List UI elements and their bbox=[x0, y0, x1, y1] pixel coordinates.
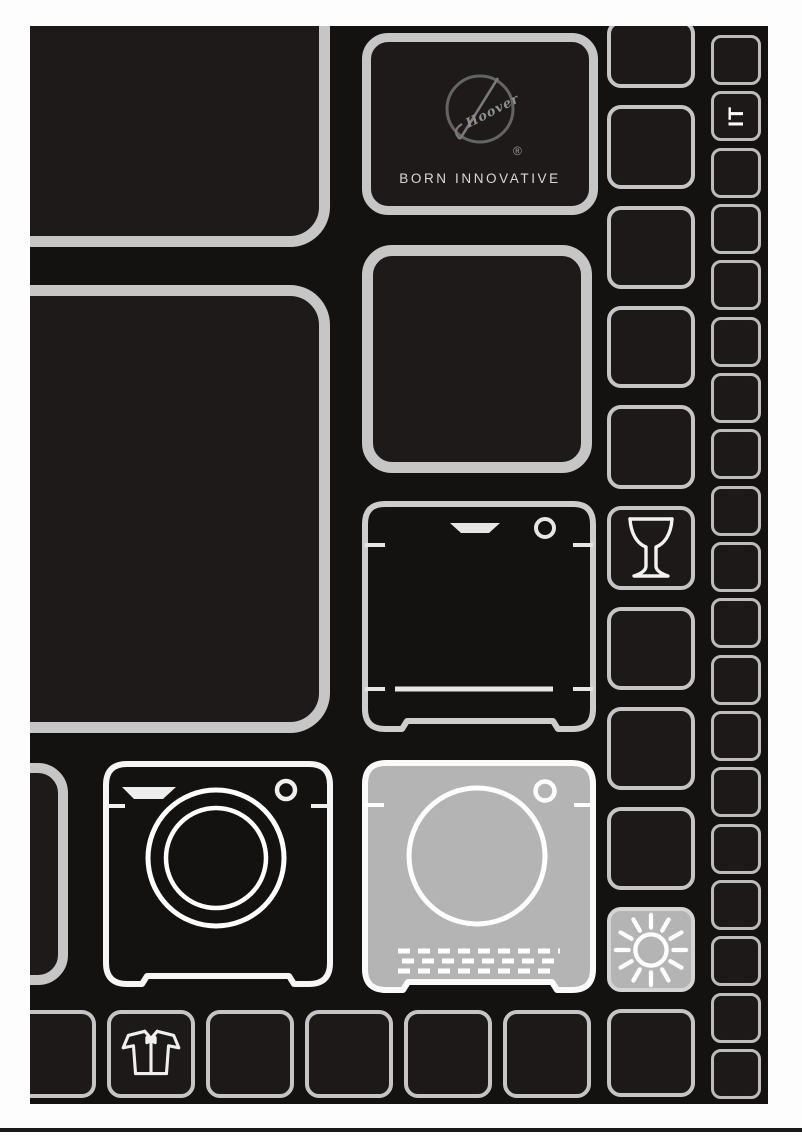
program-cell-empty bbox=[607, 105, 695, 189]
hoover-logo: Hoover ® bbox=[405, 63, 555, 165]
index-cell-empty bbox=[711, 993, 761, 1043]
program-cell-wine-glass bbox=[607, 506, 695, 590]
index-cell-empty bbox=[711, 936, 761, 986]
bottom-cell-empty bbox=[503, 1010, 591, 1098]
program-cell-empty bbox=[607, 306, 695, 388]
index-cell-empty bbox=[711, 655, 761, 705]
bottom-cell-empty bbox=[305, 1010, 393, 1098]
index-cell-empty bbox=[711, 542, 761, 592]
manual-cover-page: Hoover ® BORN INNOVATIVE bbox=[30, 26, 768, 1104]
language-badge: IT bbox=[725, 106, 746, 127]
program-cell-empty bbox=[607, 206, 695, 289]
index-cell-empty bbox=[711, 1049, 761, 1099]
sun-icon bbox=[612, 911, 690, 989]
bottom-row bbox=[30, 1010, 591, 1098]
program-cell-empty bbox=[607, 607, 695, 690]
index-cell-empty bbox=[711, 373, 761, 423]
index-cell-empty bbox=[711, 767, 761, 817]
index-cell-empty bbox=[711, 204, 761, 254]
index-cell-empty bbox=[711, 711, 761, 761]
grid-panel-top-left bbox=[30, 26, 330, 247]
page-bottom-separator bbox=[0, 1128, 802, 1132]
index-cell-empty bbox=[711, 148, 761, 198]
bottom-cell-empty bbox=[404, 1010, 492, 1098]
svg-text:®: ® bbox=[513, 144, 522, 158]
grid-panel-middle bbox=[362, 245, 592, 473]
index-cell-empty bbox=[711, 486, 761, 536]
language-index-column: IT bbox=[711, 35, 761, 1099]
bottom-cell-empty bbox=[206, 1010, 294, 1098]
appliance-front-icon bbox=[362, 501, 596, 732]
program-cell-sun bbox=[607, 907, 695, 992]
index-cell-empty bbox=[711, 880, 761, 930]
program-cell-empty bbox=[607, 405, 695, 489]
index-cell-language: IT bbox=[711, 91, 761, 141]
program-cell-empty bbox=[607, 1009, 695, 1097]
program-cell-empty bbox=[607, 707, 695, 790]
index-cell-empty bbox=[711, 35, 761, 85]
brand-tagline: BORN INNOVATIVE bbox=[399, 171, 561, 186]
wine-glass-icon bbox=[621, 515, 681, 581]
program-cell-empty bbox=[607, 26, 695, 88]
index-cell-empty bbox=[711, 260, 761, 310]
program-column bbox=[607, 26, 695, 1097]
program-cell-empty bbox=[607, 807, 695, 890]
manual-cover-screenshot: { "brand": { "name": "Hoover", "register… bbox=[0, 0, 802, 1136]
grid-panel-mid-left bbox=[30, 285, 330, 733]
washing-machine-icon bbox=[103, 761, 333, 987]
index-cell-empty bbox=[711, 824, 761, 874]
shirt-icon bbox=[118, 1025, 184, 1083]
index-cell-empty bbox=[711, 598, 761, 648]
tumble-dryer-icon bbox=[362, 760, 596, 993]
grid-panel-left-stub bbox=[30, 763, 68, 985]
bottom-cell-empty bbox=[30, 1010, 96, 1098]
bottom-cell-shirt bbox=[107, 1010, 195, 1098]
index-cell-empty bbox=[711, 317, 761, 367]
brand-panel: Hoover ® BORN INNOVATIVE bbox=[362, 33, 598, 215]
index-cell-empty bbox=[711, 429, 761, 479]
